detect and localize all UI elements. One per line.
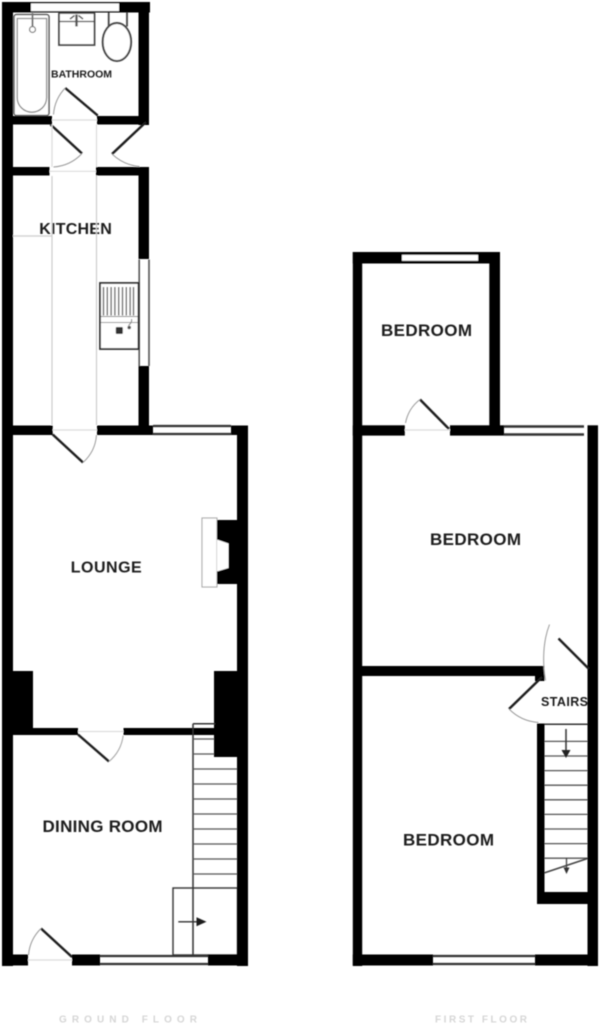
- svg-text:BEDROOM: BEDROOM: [381, 321, 472, 340]
- svg-text:FIRST FLOOR: FIRST FLOOR: [435, 1015, 528, 1024]
- svg-text:BEDROOM: BEDROOM: [430, 530, 521, 549]
- svg-text:DINING ROOM: DINING ROOM: [43, 817, 163, 836]
- svg-text:LOUNGE: LOUNGE: [71, 559, 142, 576]
- svg-text:BATHROOM: BATHROOM: [51, 69, 112, 81]
- svg-text:BEDROOM: BEDROOM: [403, 831, 494, 850]
- svg-text:STAIRS: STAIRS: [541, 695, 588, 709]
